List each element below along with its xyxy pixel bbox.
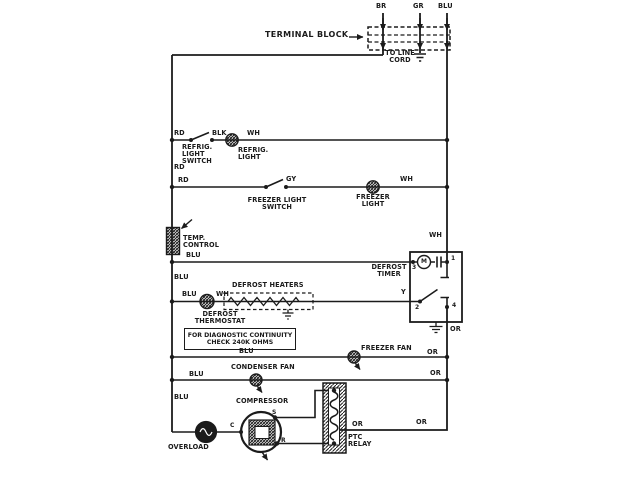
wire-label-br: BR	[376, 3, 386, 10]
wire-label-or-row6: OR	[430, 370, 441, 377]
wire-label-or-row5: OR	[427, 349, 438, 356]
freezer-fan-circuit	[172, 351, 447, 370]
wire-label-rd-left: RD	[174, 164, 185, 171]
schematic-linework	[0, 0, 640, 480]
wire-label-wh-row2: WH	[400, 176, 413, 183]
wire-label-rd-row2: RD	[178, 177, 189, 184]
defrost-heaters-label: DEFROST HEATERS	[232, 282, 304, 289]
wire-label-or-bottom-left: OR	[352, 421, 363, 428]
wire-label-gr: GR	[413, 3, 424, 10]
line-cord-ground-icon	[414, 54, 426, 61]
overload-label: OVERLOAD	[168, 444, 209, 451]
wire-label-blu-bottom: BLU	[174, 394, 189, 401]
freezer-fan-motor-icon	[348, 351, 360, 363]
refrig-light-label: REFRIG. LIGHT	[238, 147, 268, 161]
freezer-fan-label: FREEZER FAN	[361, 345, 412, 352]
to-line-cord-label: TO LINE CORD	[385, 50, 415, 64]
condenser-fan-ground-icon	[258, 387, 263, 393]
compressor-terminal-c-label: C	[230, 423, 235, 429]
condenser-fan-circuit	[172, 374, 447, 393]
condenser-fan-label: CONDENSER FAN	[231, 364, 295, 371]
terminal-block-label: TERMINAL BLOCK	[265, 31, 348, 38]
diagnostic-note-line2: CHECK 240K OHMS	[207, 339, 273, 346]
compressor-label: COMPRESSOR	[236, 398, 288, 405]
freezer-light-switch-symbol	[266, 180, 283, 188]
wire-label-wh-row1: WH	[247, 130, 260, 137]
freezer-light-switch-label: FREEZER LIGHT SWITCH	[248, 197, 307, 211]
timer-motor-letter: M	[421, 259, 427, 265]
timer-motor-contact-bars	[437, 257, 441, 268]
diagnostic-note-line1: FOR DIAGNOSTIC CONTINUITY	[188, 332, 293, 339]
power-bus-lines	[172, 13, 447, 432]
defrost-thermostat-label: DEFROST THERMOSTAT	[195, 311, 246, 325]
wire-label-blu-top: BLU	[438, 3, 453, 10]
wire-label-or-right: OR	[450, 326, 461, 333]
refrig-light-switch-symbol	[191, 133, 209, 141]
wire-label-or-bottom-right: OR	[416, 419, 427, 426]
condenser-fan-motor-icon	[250, 374, 262, 386]
wire-label-blk: BLK	[212, 130, 227, 137]
defrost-thermostat-symbol	[200, 295, 214, 309]
junction-dots	[170, 138, 449, 446]
wire-label-rd-row1: RD	[174, 130, 185, 137]
defrost-timer-label: DEFROST TIMER	[371, 264, 406, 278]
heater-ground-icon	[283, 310, 294, 320]
timer-ground-icon	[430, 322, 443, 333]
wire-label-blu-left: BLU	[174, 274, 189, 281]
freezer-light-label: FREEZER LIGHT	[356, 194, 390, 208]
timer-terminal-3-label: 3	[412, 265, 416, 271]
ptc-relay-label: PTC RELAY	[348, 434, 372, 448]
temp-control-label: TEMP. CONTROL	[183, 235, 219, 249]
timer-switch-arm	[420, 290, 438, 302]
wiring-diagram: TERMINAL BLOCK BR GR BLU TO LINE CORD RD…	[0, 0, 640, 480]
freezer-light-bulb-icon	[367, 181, 379, 193]
wire-label-blu-row4: BLU	[182, 291, 197, 298]
refrig-light-switch-label: REFRIG. LIGHT SWITCH	[182, 144, 212, 166]
refrig-light-bulb-icon	[226, 134, 238, 146]
defrost-timer-symbol	[410, 252, 462, 333]
compressor-terminal-r-label: R	[281, 438, 286, 444]
wire-label-y: Y	[401, 289, 406, 296]
wire-label-blu-row5: BLU	[239, 348, 254, 355]
temp-control-arrow-icon	[182, 220, 193, 229]
compressor-ground-icon	[262, 452, 268, 460]
wire-label-wh-row4: WH	[216, 291, 229, 298]
timer-terminal-2-label: 2	[415, 305, 419, 311]
freezer-fan-ground-icon	[356, 364, 361, 370]
timer-terminal-1-label: 1	[451, 256, 455, 262]
wire-label-gy: GY	[286, 176, 296, 183]
timer-terminal-4-label: 4	[452, 303, 456, 309]
wire-label-blu-row6: BLU	[189, 371, 204, 378]
compressor-terminal-s-label: S	[272, 410, 276, 416]
wire-label-blu-row3: BLU	[186, 252, 201, 259]
wire-label-wh-right: WH	[429, 232, 442, 239]
